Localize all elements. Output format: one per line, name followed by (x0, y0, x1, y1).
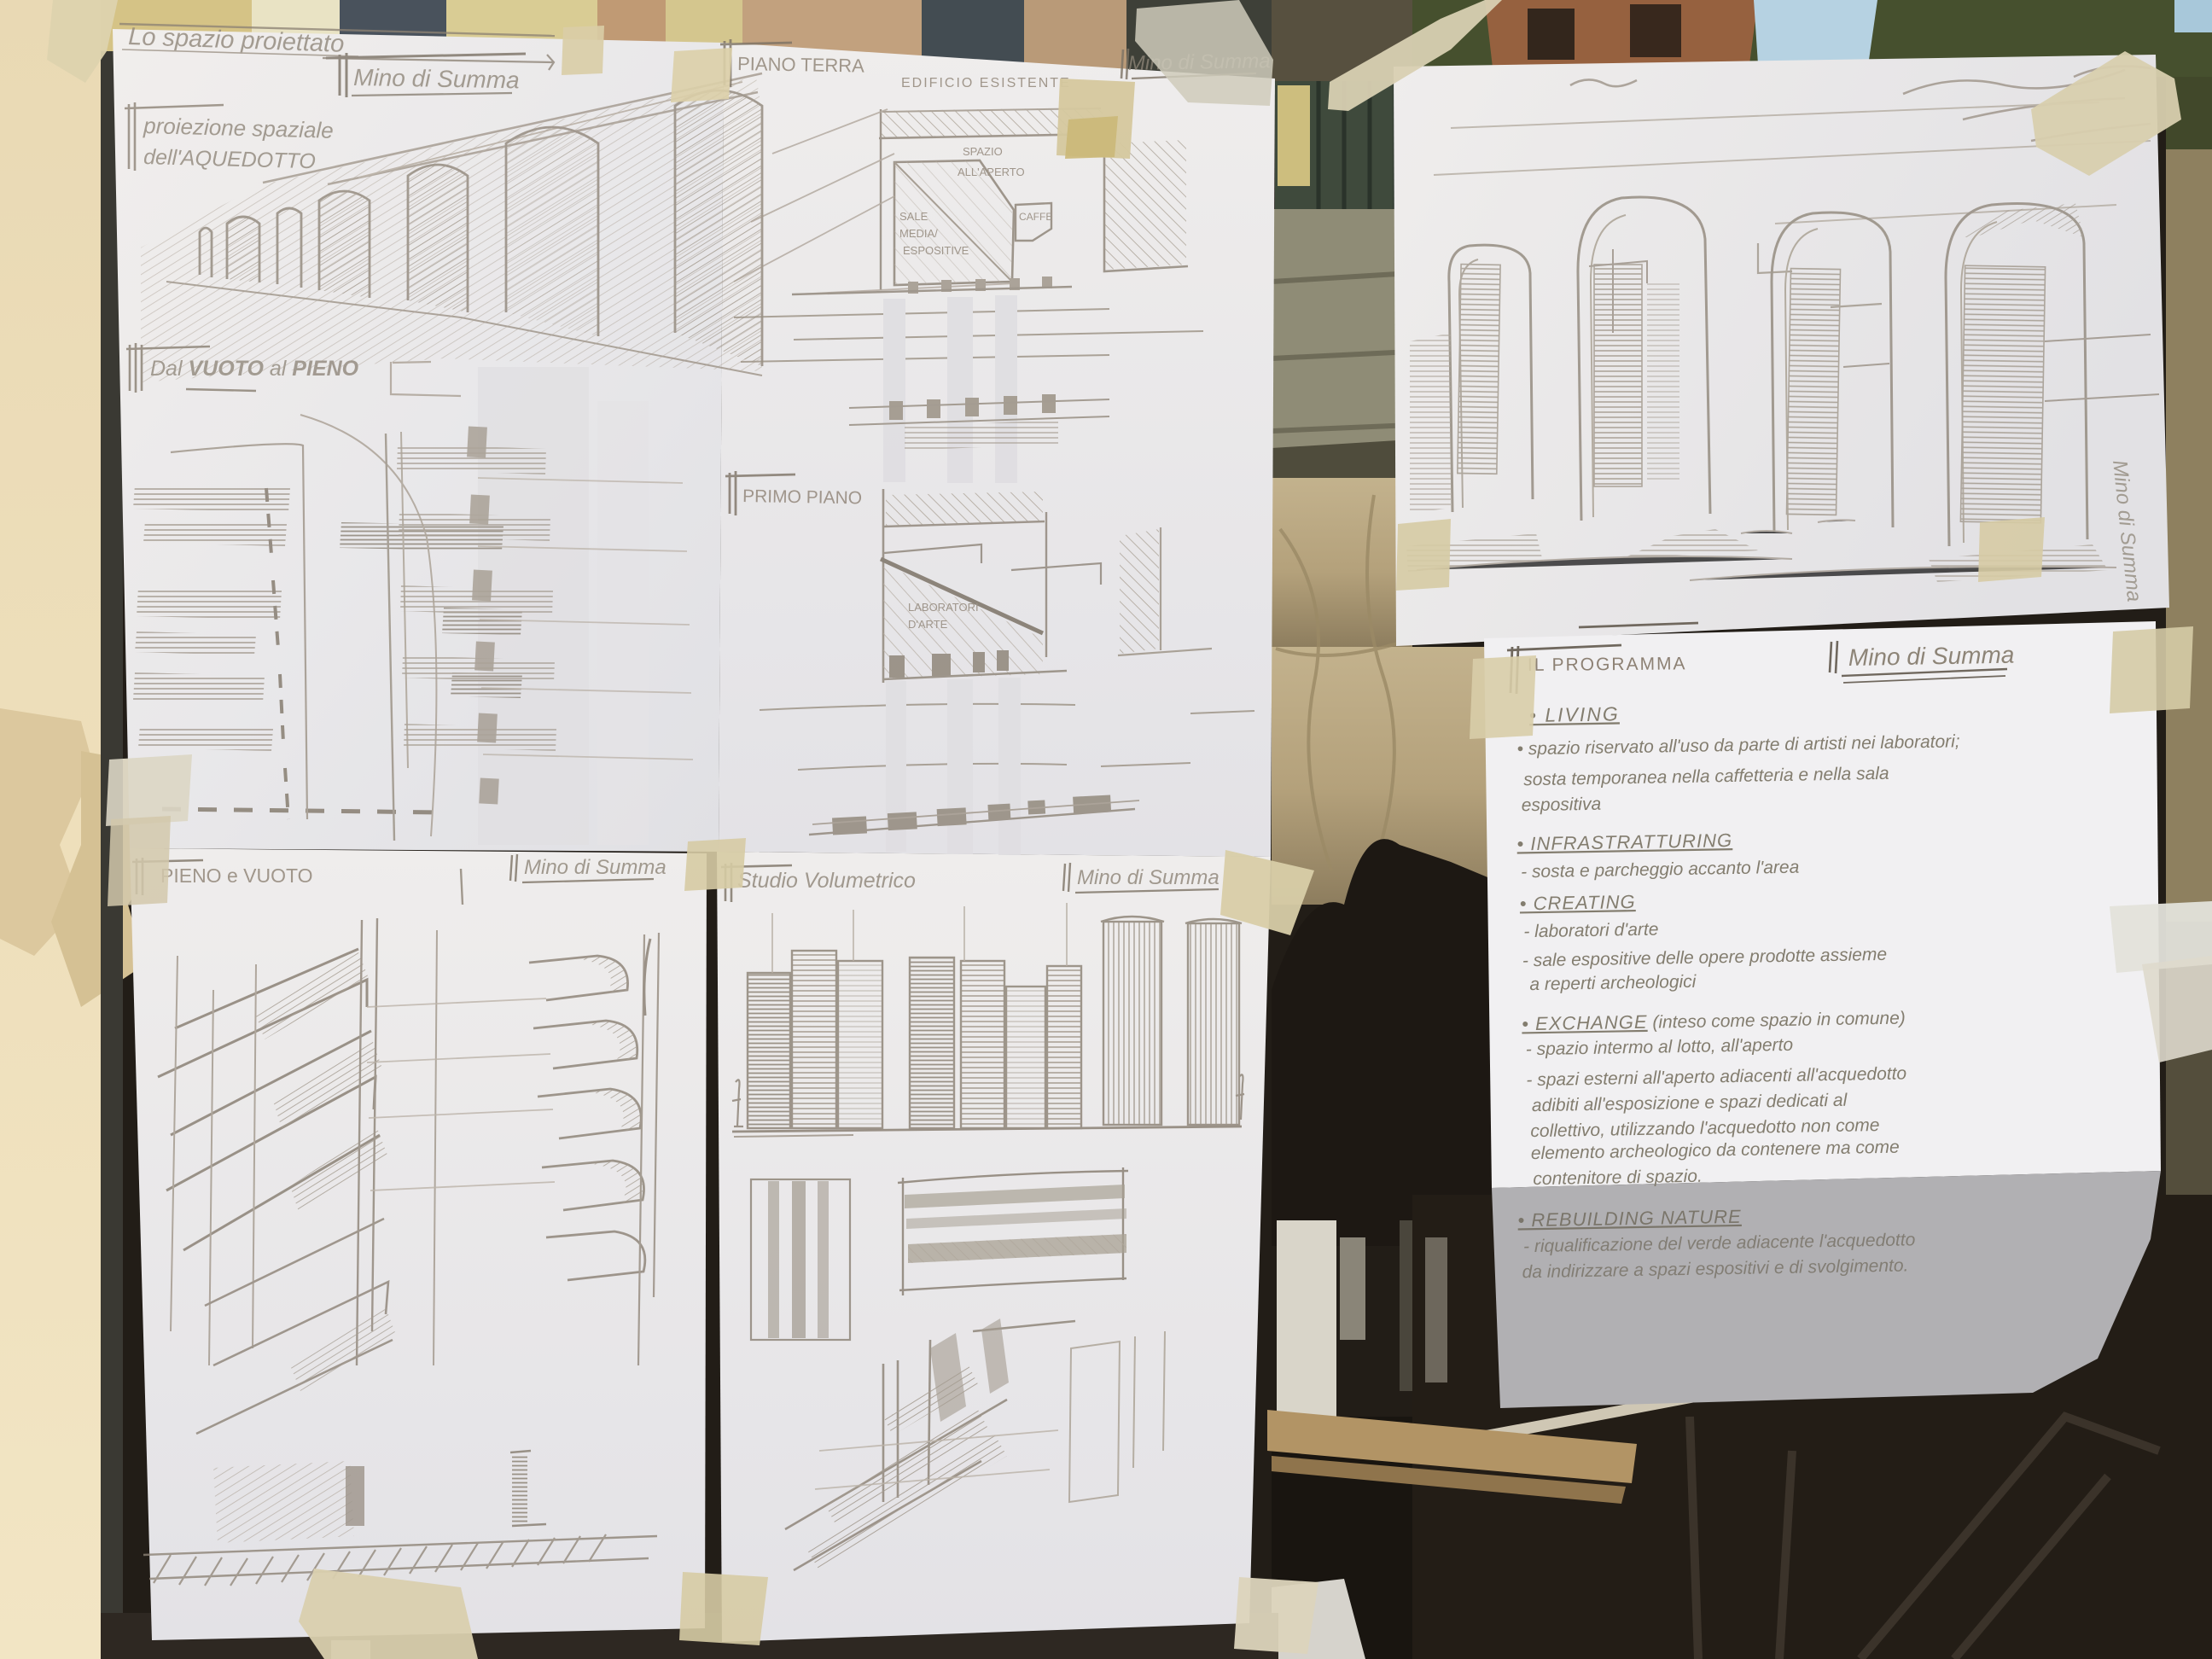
svg-text:PIANO TERRA: PIANO TERRA (737, 53, 864, 77)
svg-text:CAFFE: CAFFE (1019, 211, 1052, 223)
svg-text:proiezione spaziale: proiezione spaziale (143, 113, 334, 143)
svg-text:LABORATORI: LABORATORI (908, 601, 979, 614)
svg-text:PRIMO PIANO: PRIMO PIANO (742, 486, 862, 508)
svg-text:Mino di Summa: Mino di Summa (1077, 866, 1220, 889)
svg-text:PIENO e VUOTO: PIENO e VUOTO (160, 864, 313, 887)
svg-text:ESPOSITIVE: ESPOSITIVE (903, 244, 969, 257)
svg-text:espositiva: espositiva (1522, 795, 1602, 816)
svg-text:EDIFICIO ESISTENTE: EDIFICIO ESISTENTE (901, 76, 1071, 90)
svg-text:dell'AQUEDOTTO: dell'AQUEDOTTO (143, 145, 316, 173)
svg-text:Mino di Summa: Mino di Summa (524, 856, 667, 879)
svg-text:D'ARTE: D'ARTE (908, 618, 948, 631)
svg-text:Mino di Summa: Mino di Summa (353, 64, 520, 93)
svg-text:- laboratori d'arte: - laboratori d'arte (1523, 920, 1658, 942)
svg-text:• INFRASTRATTURING: • INFRASTRATTURING (1516, 829, 1732, 854)
svg-text:IL PROGRAMMA: IL PROGRAMMA (1528, 654, 1687, 675)
svg-text:• REBUILDING NATURE: • REBUILDING NATURE (1517, 1206, 1742, 1231)
svg-text:contenitore di spazio.: contenitore di spazio. (1533, 1167, 1703, 1189)
svg-text:• LIVING: • LIVING (1529, 702, 1620, 726)
svg-text:SALE: SALE (899, 210, 928, 223)
svg-text:Dal VUOTO al PIENO: Dal VUOTO al PIENO (150, 357, 359, 381)
svg-text:Studio Volumetrico: Studio Volumetrico (737, 869, 916, 893)
svg-text:ALL'APERTO: ALL'APERTO (958, 166, 1025, 178)
svg-text:SPAZIO: SPAZIO (963, 145, 1003, 158)
svg-text:a reperti archeologici: a reperti archeologici (1529, 972, 1697, 994)
svg-text:• CREATING: • CREATING (1520, 891, 1636, 914)
svg-text:Mino di Summa: Mino di Summa (1848, 642, 2015, 671)
svg-text:MEDIA/: MEDIA/ (899, 227, 938, 240)
